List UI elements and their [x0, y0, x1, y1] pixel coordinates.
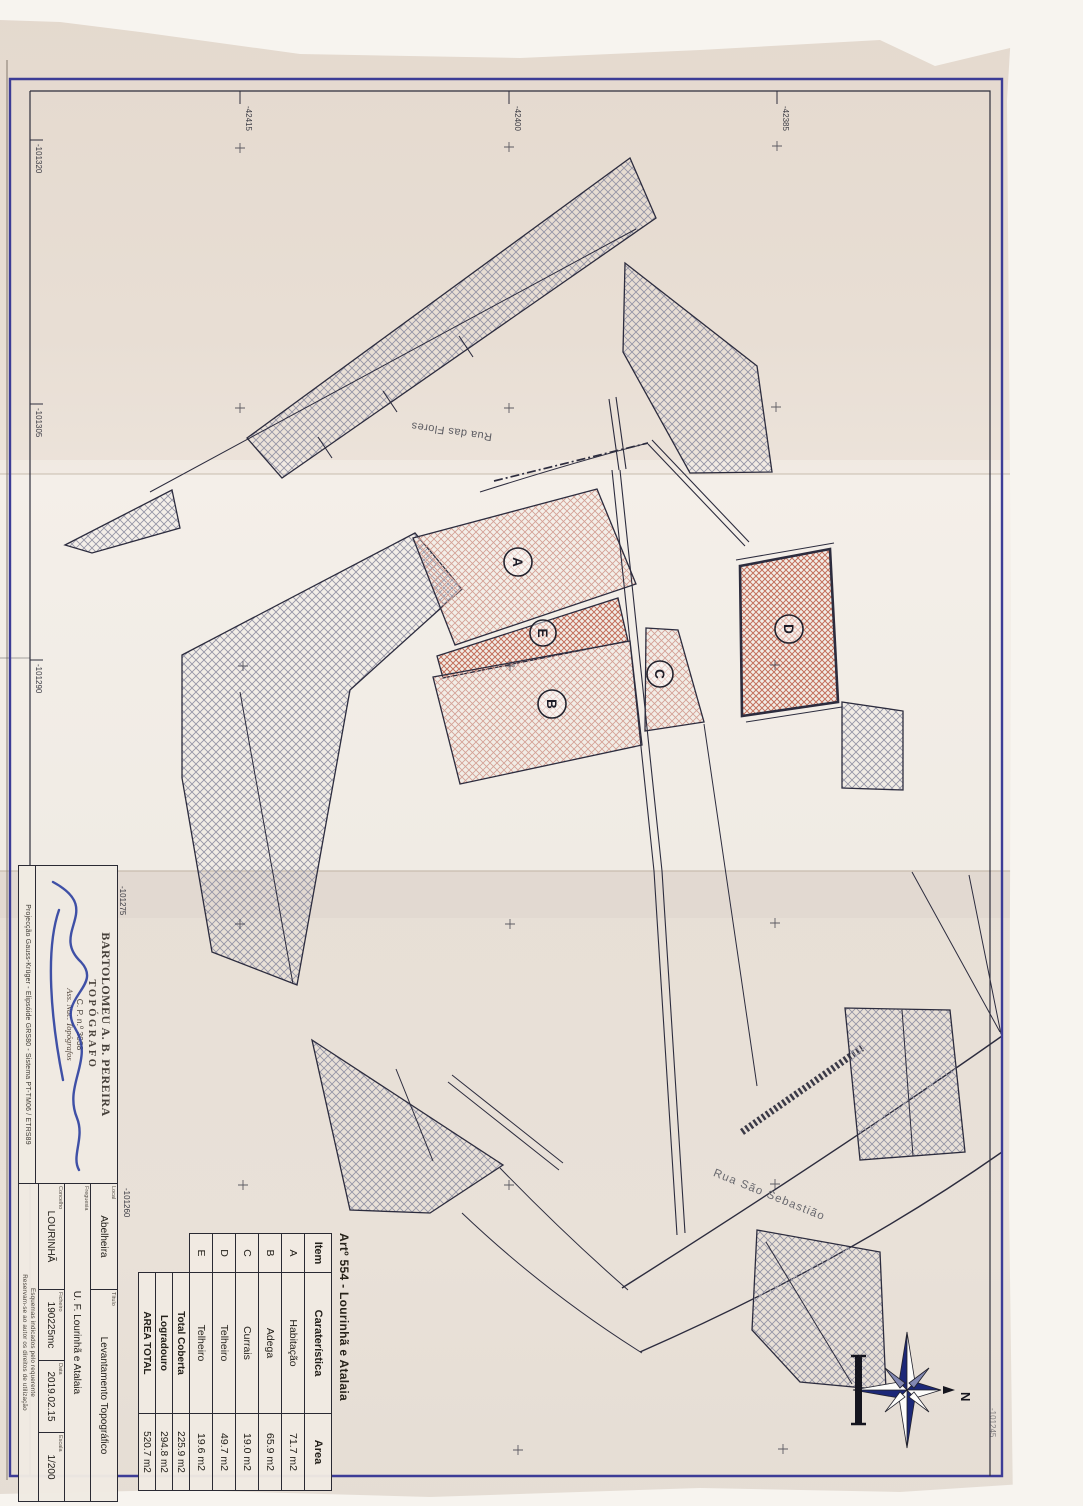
- cell-item: A: [282, 1234, 305, 1273]
- cell-item: D: [213, 1234, 236, 1273]
- total-label: Total Coberta: [173, 1273, 190, 1414]
- field-data-value: 2019.02.15: [45, 1361, 56, 1432]
- field-escala-value: 1/200: [45, 1433, 56, 1501]
- field-escala-label: Escala: [57, 1435, 63, 1452]
- table-row: D Telheiro 49.7 m2: [213, 1234, 236, 1491]
- table-row: E Telheiro 19.6 m2: [190, 1234, 213, 1491]
- grid-label-y2: -101305: [34, 408, 43, 438]
- road-retaining-hatch: [742, 1048, 862, 1132]
- north-label: N: [958, 1392, 973, 1401]
- table-header-row: Item Caraterística Area: [305, 1234, 332, 1491]
- fine-print-line1: Esquemas indicados pelo requerente: [29, 1288, 37, 1397]
- field-titulo: Título Levantamento Topográfico: [91, 1290, 117, 1501]
- table-total-row: AREA TOTAL 520.7 m2: [139, 1234, 156, 1491]
- header-caracteristica: Caraterística: [305, 1273, 332, 1414]
- fine-print-line2: Reservam-se ao autor os direitos de util…: [21, 1274, 29, 1410]
- grid-label-y4: -101275: [118, 886, 127, 916]
- surveyor-stamp: BARTOLOMEU A. B. PEREIRA TOPÓGRAFO C. P.…: [19, 866, 117, 1184]
- neighbour-building-south: [752, 1230, 886, 1390]
- cell-area: 19.6 m2: [190, 1414, 213, 1491]
- total-label: AREA TOTAL: [139, 1273, 156, 1414]
- field-data: Data 2019.02.15: [39, 1361, 64, 1433]
- north-arrow: [943, 1386, 955, 1394]
- grid-label-x3: -42385: [781, 106, 790, 131]
- grid-label-y1: -101320: [34, 144, 43, 174]
- parcel-c-label: C: [652, 669, 667, 679]
- table-total-row: Total Coberta 225.9 m2: [173, 1234, 190, 1491]
- grid-label-y5: -101260: [122, 1188, 131, 1218]
- table-row: B Adega 65.9 m2: [259, 1234, 282, 1491]
- fine-print: Esquemas indicados pelo requerente Reser…: [19, 1184, 38, 1501]
- areas-table: Item Caraterística Area A Habitação 71.7…: [138, 1233, 332, 1491]
- table-row: A Habitação 71.7 m2: [282, 1234, 305, 1491]
- field-freguesia-value: U. F. Lourinhã e Atalaia: [71, 1184, 82, 1501]
- table-total-row: Logradouro 294.8 m2: [156, 1234, 173, 1491]
- parcel-d-label: D: [781, 624, 796, 634]
- cell-area: 49.7 m2: [213, 1414, 236, 1491]
- field-titulo-label: Título: [110, 1292, 116, 1306]
- street-label-rua-das-flores: Rua das Flores: [410, 419, 492, 442]
- cell-item: E: [190, 1234, 213, 1273]
- neighbour-building-east: [623, 263, 772, 473]
- field-local-value: Abelheira: [98, 1184, 109, 1289]
- field-ficheiro-value: 190225mc: [45, 1290, 56, 1360]
- field-concelho-label: Concelho: [57, 1186, 63, 1209]
- parcel-a-label: A: [510, 557, 525, 567]
- cell-item: B: [259, 1234, 282, 1273]
- cell-caracteristica: Telheiro: [190, 1273, 213, 1414]
- table-row: C Currais 19.0 m2: [236, 1234, 259, 1491]
- field-titulo-value: Levantamento Topográfico: [98, 1290, 109, 1501]
- total-value: 294.8 m2: [156, 1414, 173, 1491]
- cell-caracteristica: Habitação: [282, 1273, 305, 1414]
- neighbour-shed: [842, 702, 903, 790]
- map-linework: [65, 158, 1002, 1390]
- parcel-e-label: E: [535, 628, 550, 637]
- parcel-b-label: B: [544, 699, 559, 709]
- grid-label-x2: -42400: [513, 106, 522, 131]
- street-label-rua-sao-sebastiao: Rua São Sebastião: [711, 1167, 826, 1223]
- scanned-survey-sheet: -42415 -42400 -42385 -101320 -101305 -10…: [0, 0, 1083, 1506]
- cell-area: 19.0 m2: [236, 1414, 259, 1491]
- signature-icon: [35, 870, 115, 1180]
- cell-area: 65.9 m2: [259, 1414, 282, 1491]
- total-label: Logradouro: [156, 1273, 173, 1414]
- plan-title: Artº 554 - Lourinhã e Atalaia: [332, 1233, 356, 1502]
- header-area: Area: [305, 1414, 332, 1491]
- field-escala: Escala 1/200: [39, 1433, 64, 1501]
- header-item: Item: [305, 1234, 332, 1273]
- neighbour-building-southeast: [845, 1008, 965, 1160]
- neighbour-building-southwest: [312, 1040, 503, 1213]
- cell-caracteristica: Telheiro: [213, 1273, 236, 1414]
- grid-label-x1: -42415: [244, 106, 253, 131]
- field-ficheiro-label: Ficheiro: [57, 1292, 63, 1312]
- neighbour-building-west: [65, 490, 180, 553]
- field-freguesia-label: Freguesia: [83, 1186, 89, 1210]
- cell-item: C: [236, 1234, 259, 1273]
- total-value: 520.7 m2: [139, 1414, 156, 1491]
- grid-label-y6: -101245: [988, 1408, 997, 1438]
- title-block-fields: Local Abelheira Título Levantamento Topo…: [19, 1184, 117, 1501]
- areas-table-block: Artº 554 - Lourinhã e Atalaia Item Carat…: [122, 1233, 356, 1502]
- projection-note: Projecção Gauss-Krüger - Elipsóide GRS80…: [19, 866, 36, 1183]
- field-concelho: Concelho LOURINHÃ: [39, 1184, 64, 1290]
- total-value: 225.9 m2: [173, 1414, 190, 1491]
- field-data-label: Data: [57, 1363, 63, 1375]
- cell-caracteristica: Currais: [236, 1273, 259, 1414]
- field-concelho-value: LOURINHÃ: [45, 1184, 56, 1289]
- title-block: BARTOLOMEU A. B. PEREIRA TOPÓGRAFO C. P.…: [18, 865, 118, 1502]
- field-local-label: Local: [110, 1186, 116, 1199]
- grid-label-y3: -101290: [34, 664, 43, 694]
- field-freguesia: Freguesia U. F. Lourinhã e Atalaia: [65, 1184, 90, 1501]
- cell-caracteristica: Adega: [259, 1273, 282, 1414]
- field-local: Local Abelheira: [91, 1184, 117, 1290]
- field-ficheiro: Ficheiro 190225mc: [39, 1290, 64, 1361]
- cell-area: 71.7 m2: [282, 1414, 305, 1491]
